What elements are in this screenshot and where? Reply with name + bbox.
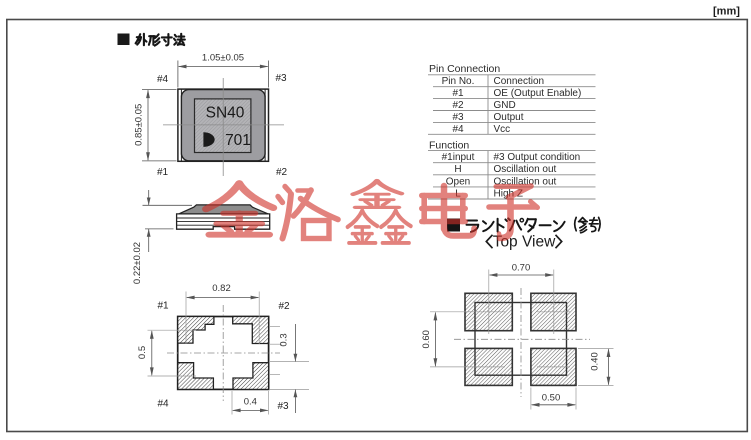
svg-text:#4: #4 bbox=[157, 399, 169, 410]
svg-text:0.82: 0.82 bbox=[212, 283, 231, 294]
svg-text:#4: #4 bbox=[157, 74, 169, 85]
svg-text:#4: #4 bbox=[452, 124, 464, 135]
svg-text:0.5: 0.5 bbox=[137, 346, 148, 359]
svg-text:Output: Output bbox=[494, 112, 524, 123]
svg-text:H: H bbox=[454, 164, 461, 175]
svg-text:Pin No.: Pin No. bbox=[442, 76, 475, 87]
svg-text:#2: #2 bbox=[452, 100, 464, 111]
svg-text:0.3: 0.3 bbox=[279, 333, 290, 346]
svg-text:Pin Connection: Pin Connection bbox=[429, 63, 500, 75]
svg-text:#3 Output condition: #3 Output condition bbox=[494, 152, 581, 163]
svg-text:0.50: 0.50 bbox=[542, 393, 561, 404]
svg-text:#2: #2 bbox=[276, 167, 288, 178]
svg-text:OE (Output Enable): OE (Output Enable) bbox=[494, 88, 582, 99]
svg-text:#3: #3 bbox=[277, 401, 289, 412]
svg-text:0.4: 0.4 bbox=[244, 397, 257, 408]
svg-text:Vcc: Vcc bbox=[494, 124, 511, 135]
svg-text:701: 701 bbox=[225, 132, 251, 149]
svg-text:#3: #3 bbox=[275, 73, 287, 84]
svg-text:0.85±0.05: 0.85±0.05 bbox=[134, 104, 145, 146]
svg-text:Function: Function bbox=[429, 139, 469, 151]
svg-text:0.60: 0.60 bbox=[421, 330, 432, 349]
svg-text:#1input: #1input bbox=[442, 152, 475, 163]
svg-text:SN40: SN40 bbox=[206, 104, 245, 121]
svg-text:0.40: 0.40 bbox=[590, 352, 601, 371]
svg-text:#1: #1 bbox=[157, 167, 169, 178]
svg-text:#2: #2 bbox=[278, 301, 290, 312]
svg-text:Open: Open bbox=[446, 176, 470, 187]
svg-text:[mm]: [mm] bbox=[713, 6, 740, 18]
svg-text:GND: GND bbox=[494, 100, 516, 111]
svg-text:Connection: Connection bbox=[494, 76, 545, 87]
svg-text:#3: #3 bbox=[452, 112, 464, 123]
svg-text:Oscillation out: Oscillation out bbox=[494, 164, 557, 175]
svg-text:#1: #1 bbox=[157, 301, 169, 312]
svg-text:0.70: 0.70 bbox=[512, 263, 531, 274]
svg-text:#1: #1 bbox=[452, 88, 464, 99]
svg-text:1.05±0.05: 1.05±0.05 bbox=[202, 53, 244, 64]
svg-text:0.22±0.02: 0.22±0.02 bbox=[132, 242, 143, 284]
